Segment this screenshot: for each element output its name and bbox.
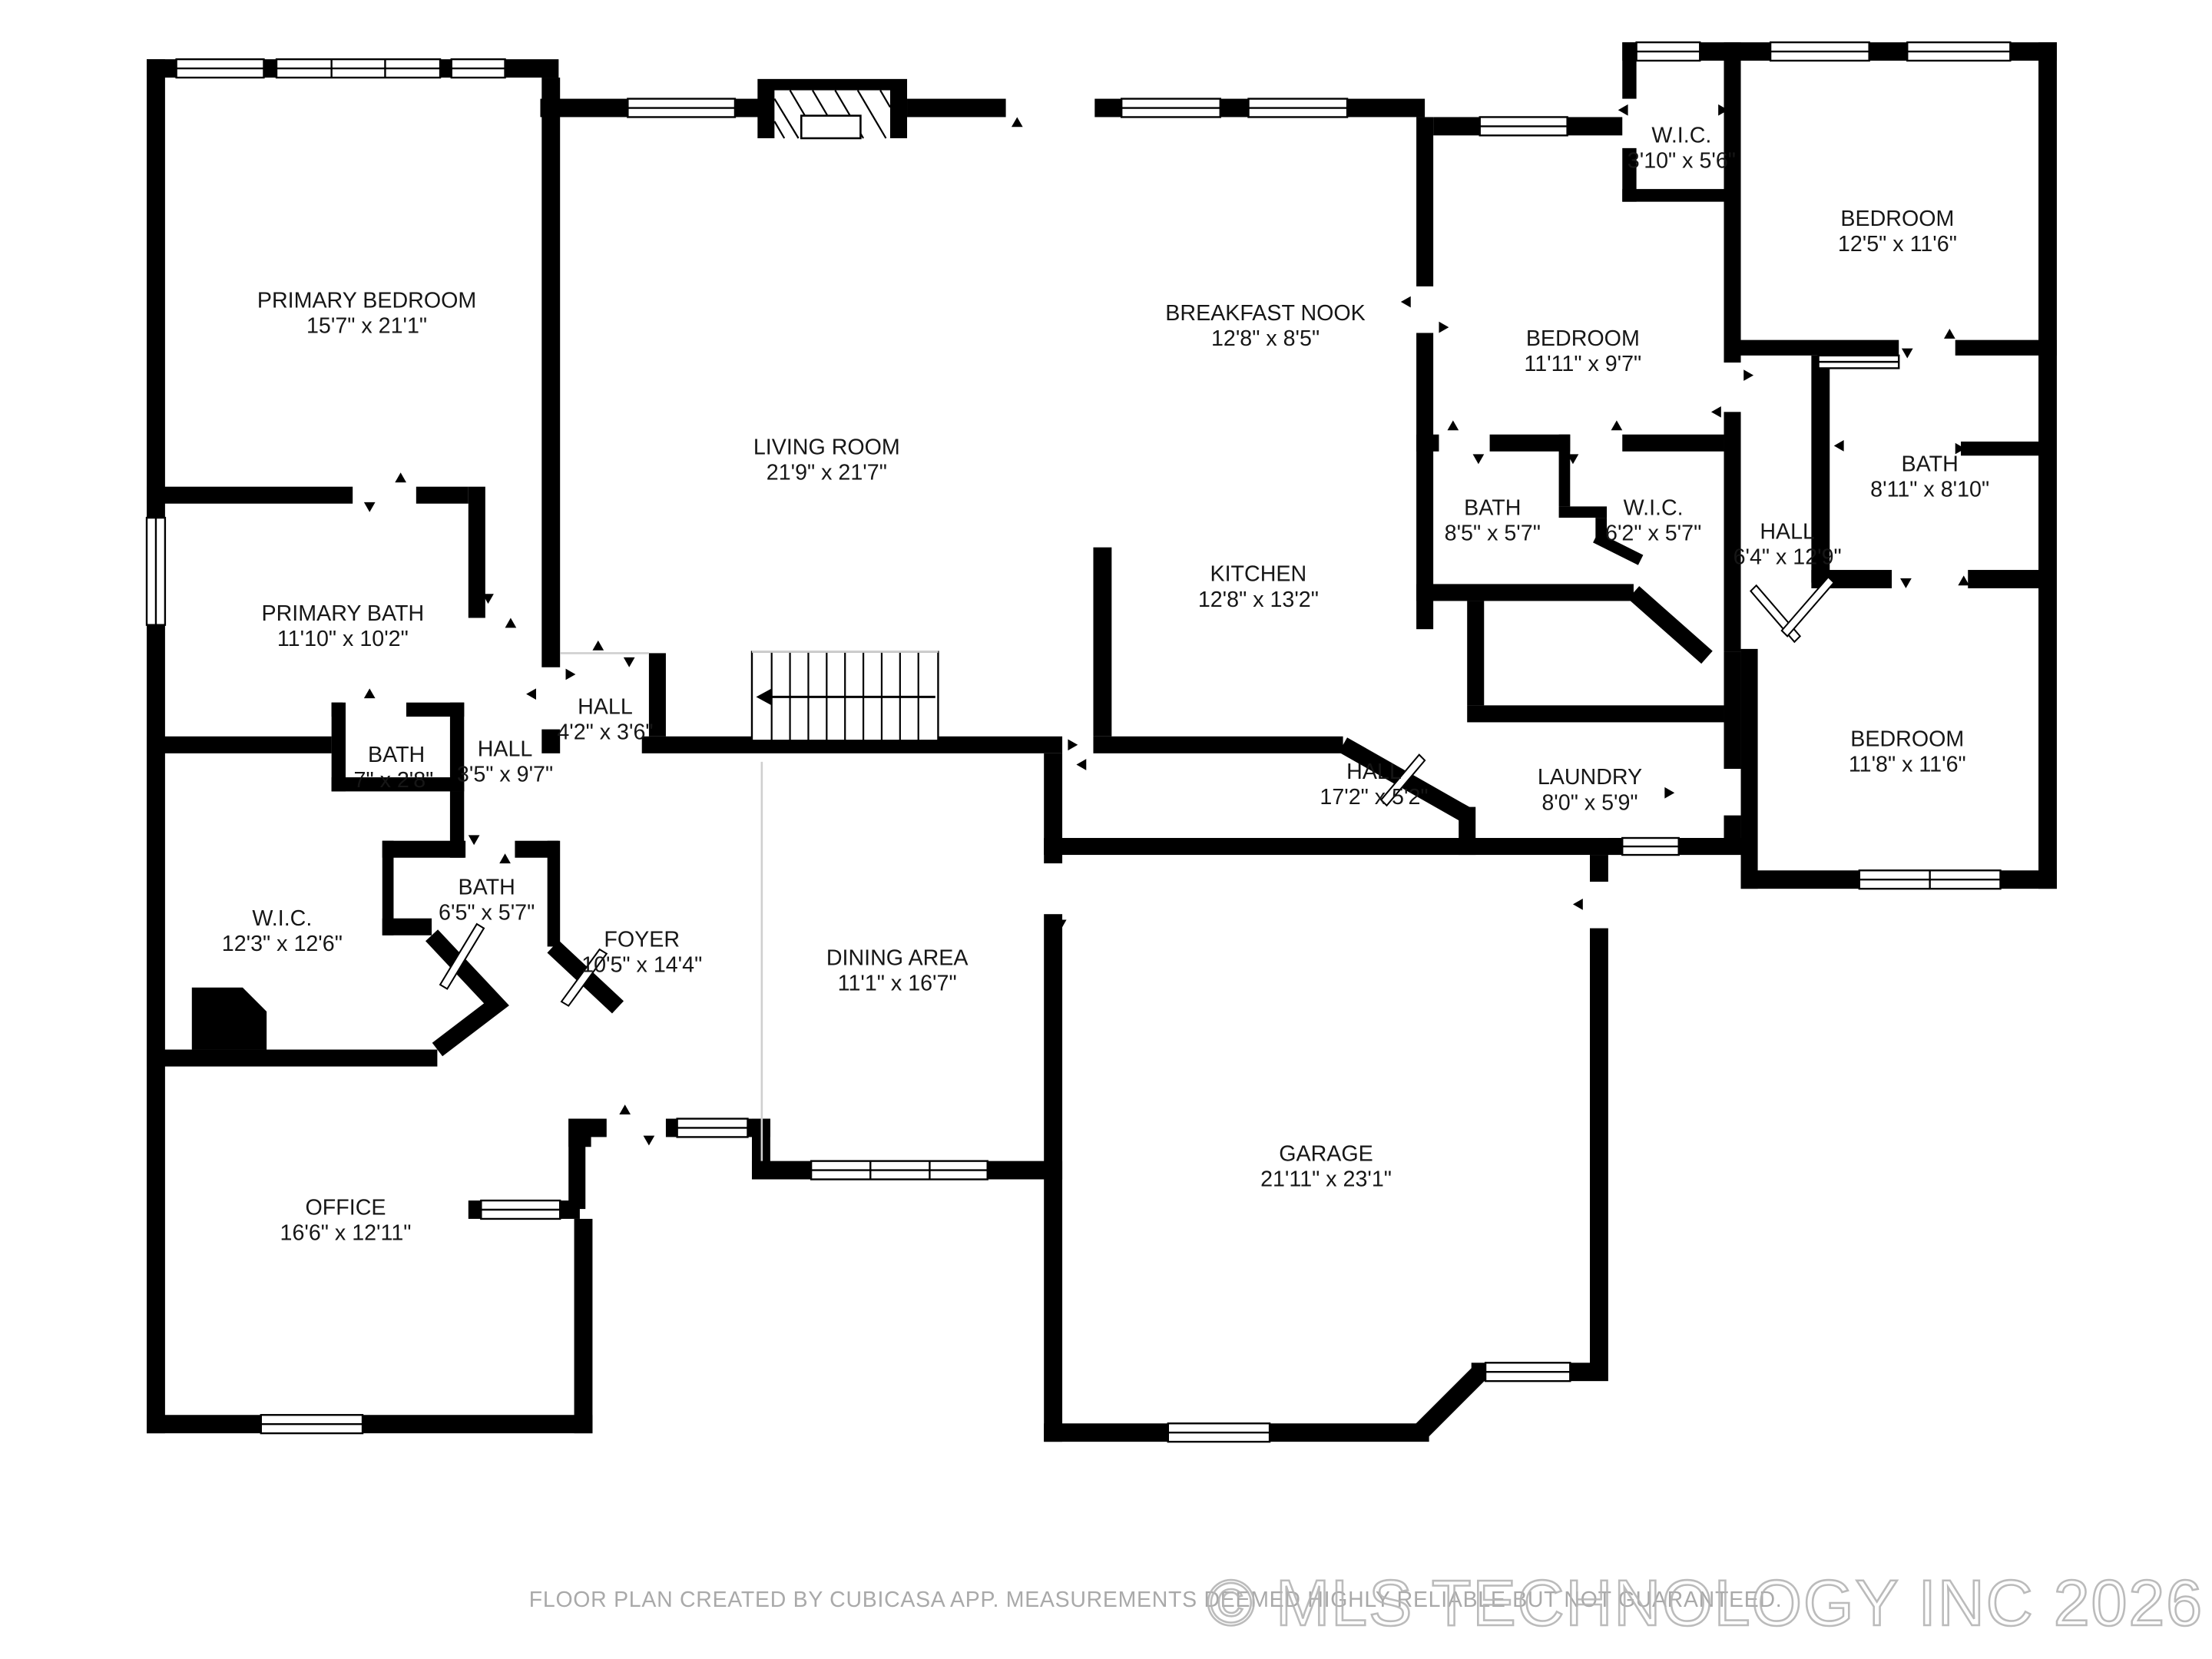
door-marker [1834,440,1844,452]
room-dims: 8'5" x 5'7" [1445,521,1541,545]
door-marker [566,669,576,680]
floor-plan-canvas: PRIMARY BEDROOM 15'7" x 21'1" PRIMARY BA… [0,0,2212,1659]
room-label: HALL [578,694,633,719]
room-label: HALL [1760,520,1815,545]
room-dims: 12'8" x 8'5" [1211,326,1320,351]
door-marker [1902,349,1913,359]
window [1637,42,1700,61]
room-dims: 17'2" x 5'2" [1320,785,1428,810]
door-marker [644,1136,655,1146]
door-marker [1664,787,1674,799]
door-marker [592,641,604,651]
room-dims: 8'11" x 8'10" [1870,478,1989,502]
room-label: BATH [1464,495,1521,520]
room-label: W.I.C. [1624,495,1684,520]
door-marker [1068,739,1078,750]
room-dims: 3'10" x 5'6" [1628,149,1736,174]
walls [147,42,2057,1442]
window [1859,870,2001,889]
door-leaf [1750,585,1800,641]
door-marker [624,657,635,667]
room-dims: 8'0" x 5'9" [1541,790,1637,815]
room-label: DINING AREA [826,945,969,970]
door-marker [1618,104,1628,116]
window [481,1200,560,1219]
room-label: FOYER [604,927,680,952]
window [276,59,440,78]
room-label: PRIMARY BATH [261,601,424,626]
window [1770,42,1869,61]
room-label: LIVING ROOM [753,435,900,459]
room-dims: 6'5" x 5'7" [439,901,535,926]
room-dims: 12'3" x 12'6" [222,932,343,956]
room-label: OFFICE [305,1195,386,1220]
window [677,1119,748,1137]
room-label: BEDROOM [1850,727,1964,752]
fireplace [757,79,907,138]
door-marker [1958,575,1969,585]
door-marker [1401,296,1411,308]
stairs [752,652,938,741]
window [147,518,165,625]
room-dims: 12'5" x 11'6" [1838,232,1957,257]
door-marker [1573,899,1583,910]
room-label: BREAKFAST NOOK [1165,301,1366,326]
room-dims: 10'5" x 14'4" [581,953,702,978]
room-dims: 11'10" x 10'2" [277,627,409,651]
door-marker [1900,578,1912,588]
door-marker [1944,329,1955,339]
room-label: LAUNDRY [1538,765,1642,790]
window [261,1415,363,1433]
room-label: W.I.C. [252,906,312,931]
room-label: HALL [1346,760,1402,784]
room-label: BATH [459,875,515,899]
window [1480,117,1568,135]
room-label: BATH [368,743,425,767]
window [452,59,505,78]
door-marker [1012,117,1023,127]
room-dims: 4'2" x 3'6" [557,720,653,744]
door-marker [395,472,406,482]
door-marker [1611,420,1623,430]
room-dims: 3'5" x 9'7" [457,763,553,787]
room-dims: 7" x 2'8" [354,768,434,793]
room-dims: 12'8" x 13'2" [1198,588,1319,612]
glass-partition [1819,356,1899,369]
window [1485,1363,1570,1381]
room-label: GARAGE [1279,1142,1373,1167]
room-label: BEDROOM [1840,207,1954,231]
door-marker [619,1104,631,1114]
window [1249,99,1348,118]
door-marker [364,502,376,512]
room-label: BEDROOM [1526,326,1640,351]
door-leaf [1782,577,1834,636]
room-dims: 21'9" x 21'7" [767,460,887,485]
door-marker [499,853,511,863]
room-label: BATH [1902,452,1959,476]
door-marker [1711,406,1721,418]
room-dims: 16'6" x 12'11" [280,1220,412,1245]
door-marker [1743,369,1753,381]
firebox [801,116,860,138]
door-marker [469,835,480,845]
watermark-text: © MLS TECHNOLOGY INC 2026 [1207,1567,2204,1639]
window [811,1161,988,1180]
window [628,99,735,118]
door-marker [1076,759,1086,770]
window [177,59,264,78]
door-marker [505,618,517,628]
room-dims: 21'11" x 23'1" [1260,1167,1392,1192]
room-label: KITCHEN [1210,562,1307,587]
door-marker [1473,454,1485,464]
floor-plan-page: PRIMARY BEDROOM 15'7" x 21'1" PRIMARY BA… [0,0,2212,1659]
room-dims: 6'4" x 12'9" [1734,545,1842,570]
window [1907,42,2010,61]
room-dims: 15'7" x 21'1" [306,313,427,338]
room-dims: 6'2" x 5'7" [1605,521,1701,545]
window [1121,99,1220,118]
door-marker [1447,420,1459,430]
door-marker [1439,322,1449,333]
window [1622,838,1678,855]
room-label: PRIMARY BEDROOM [257,288,476,313]
room-label: HALL [478,737,533,761]
door-marker [526,688,536,700]
room-dims: 11'11" x 9'7" [1524,352,1641,376]
room-dims: 11'8" x 11'6" [1849,753,1966,777]
footer: FLOOR PLAN CREATED BY CUBICASA APP. MEAS… [529,1567,2204,1639]
window [1168,1423,1270,1442]
door-marker [364,688,376,698]
room-label: W.I.C. [1651,124,1711,148]
room-dims: 11'1" x 16'7" [838,971,957,995]
